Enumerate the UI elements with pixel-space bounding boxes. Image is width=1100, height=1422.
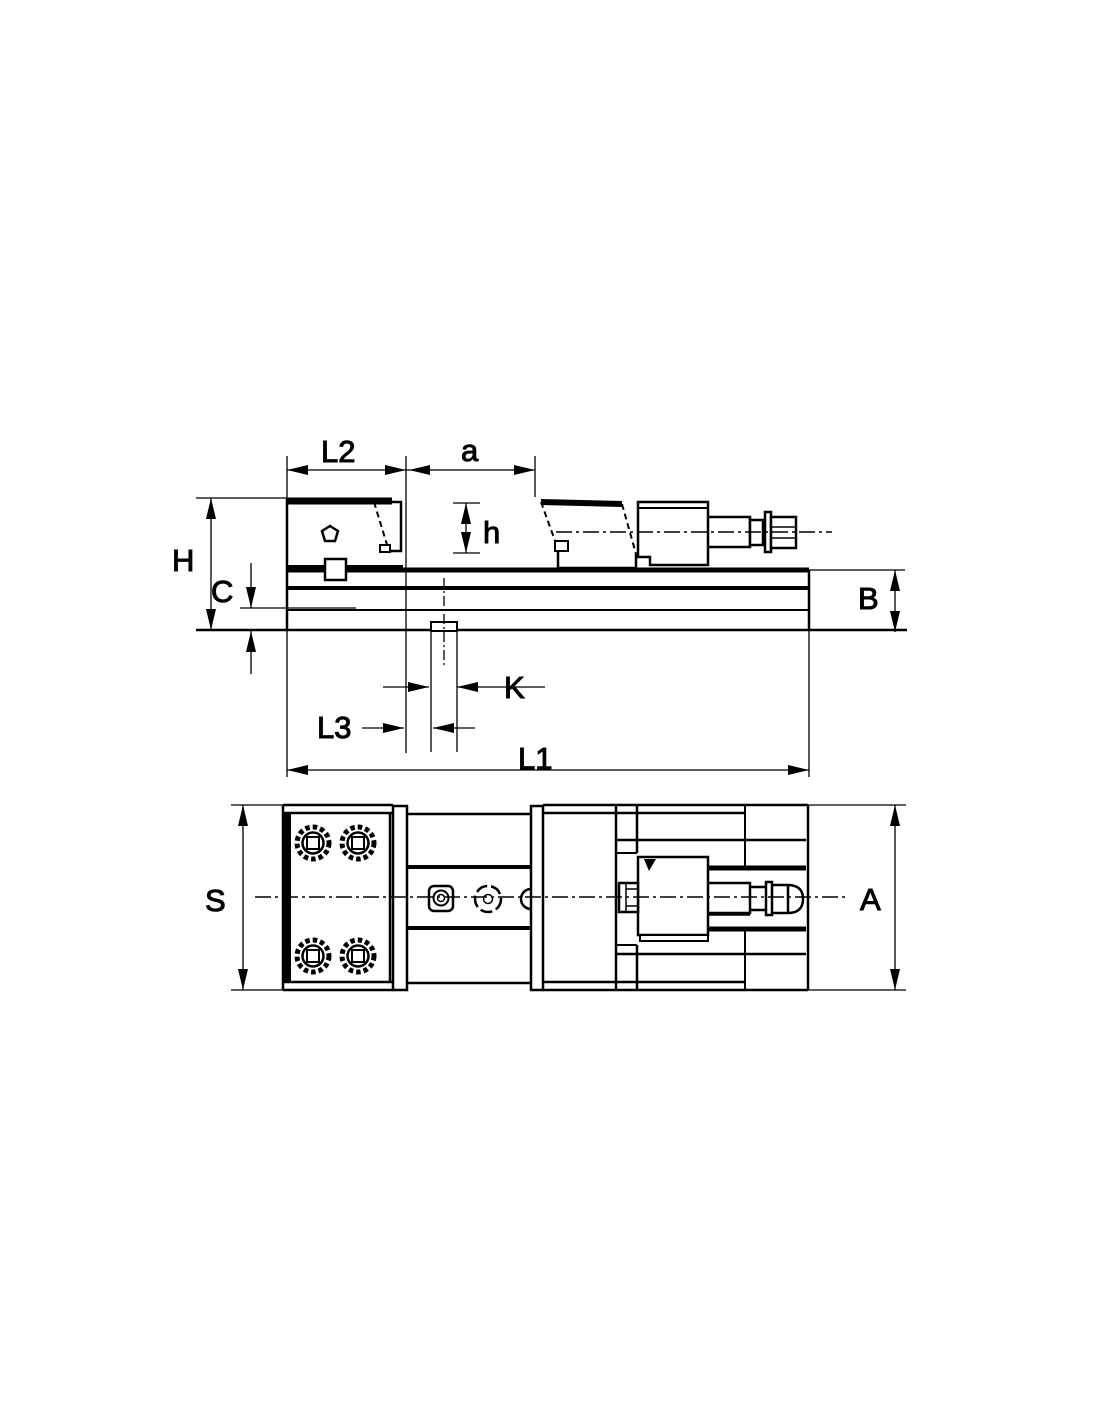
dim-S: S (205, 805, 248, 990)
screw-socket (307, 950, 319, 962)
screw-head (348, 946, 369, 967)
dim-label-L2: L2 (321, 434, 355, 469)
dim-label-h: h (483, 515, 500, 550)
dim-label-A: A (860, 882, 881, 917)
rail-fastener-round (475, 886, 501, 912)
dim-label-H: H (172, 543, 194, 578)
dim-arrows-L3 (383, 723, 454, 733)
dim-L1: L1 (287, 741, 809, 776)
vise-base (196, 498, 907, 630)
mounting-screw-bottom-right (342, 940, 374, 972)
dim-C: C (211, 563, 256, 674)
screw-socket (352, 837, 364, 849)
movable-jaw-notch (555, 541, 568, 551)
spindle-shaft-plan (708, 883, 750, 913)
spindle-cavity-edges (708, 868, 806, 929)
dim-label-C: C (211, 574, 233, 609)
clamp-bracket-right (531, 806, 543, 990)
dim-H: H (172, 498, 216, 630)
screw-head (348, 833, 369, 854)
rail-fastener-half (521, 889, 531, 909)
dim-A: A (860, 805, 900, 990)
screw-socket (307, 837, 319, 849)
dim-arrows-K (408, 682, 478, 692)
fixed-jaw-insert-dashed-edge (374, 502, 388, 548)
dim-label-S: S (205, 883, 226, 918)
fixed-jaw-block (287, 501, 401, 552)
rail-fasteners (429, 886, 531, 912)
movable-jaw-top-strip (541, 502, 622, 504)
dim-arrows-C (246, 587, 256, 652)
spindle-bullet-cap (788, 885, 803, 913)
mounting-screw-bottom-left (297, 940, 329, 972)
plan-view: S A (205, 805, 906, 990)
spindle-step-plan (750, 887, 766, 910)
clamp-bracket-left (393, 806, 407, 990)
dim-h: h (461, 503, 500, 553)
dim-L2-a: L2 a (287, 433, 535, 475)
dim-label-L1: L1 (518, 741, 552, 776)
nut-block-lip (640, 935, 708, 941)
clamp-square-nut (325, 559, 346, 580)
screw-socket (352, 950, 364, 962)
fastener-body (475, 886, 501, 912)
dim-label-B: B (858, 581, 879, 616)
movable-jaw-outline (558, 549, 636, 568)
spindle-collar-plan (766, 882, 772, 915)
dim-label-a: a (461, 433, 479, 468)
screw-head (303, 946, 324, 967)
side-view: L2 a h H C B K (172, 433, 907, 777)
technical-drawing-page: L2 a h H C B K (0, 0, 1100, 1422)
movable-jaw (541, 502, 636, 568)
mounting-screw-top-left (297, 827, 329, 859)
dim-label-L3: L3 (317, 710, 351, 745)
dim-L3: L3 (317, 710, 475, 745)
spindle-nut-block (638, 857, 708, 941)
rail-fastener-square (429, 886, 453, 911)
spindle-bracket-block (638, 502, 708, 565)
dim-K: K (383, 670, 545, 705)
dim-B: B (858, 570, 900, 632)
spindle-assembly (638, 502, 796, 565)
fixed-jaw-insert-notch (380, 545, 390, 552)
screw-head (303, 833, 324, 854)
vise-drawing-canvas: L2 a h H C B K (0, 0, 1100, 1422)
spindle-bullet-plan (772, 885, 788, 913)
mounting-screw-top-right (342, 827, 374, 859)
pentagon-hole (322, 526, 338, 541)
dim-label-K: K (504, 670, 525, 705)
